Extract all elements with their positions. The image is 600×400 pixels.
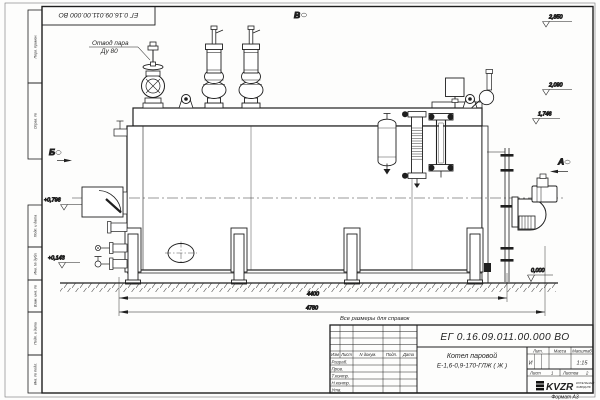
reference-note: Все размеры для справок (340, 316, 410, 322)
elev-0000: 0,000 (531, 268, 545, 274)
stamp-label: Справ. № (33, 113, 37, 129)
callout-line1: Отвод пара (92, 39, 129, 47)
role-utv: Утв. (332, 388, 342, 393)
col-list: Лист (340, 352, 352, 357)
stamp-label: Взам. инв. № (33, 285, 37, 307)
col-doc: N докум. (360, 352, 377, 357)
product-name: Котел паровой (447, 352, 497, 360)
stamp-label: Подп. и дата (33, 215, 37, 238)
elev-2850: 2,850 (548, 15, 563, 21)
col-mass: Масса (554, 349, 567, 354)
dim-4400: 4400 (307, 292, 319, 298)
role-prov: Пров. (332, 367, 344, 372)
elev-0796: +0,796 (44, 198, 61, 204)
elev-0143: +0,143 (48, 256, 65, 262)
stamp-label: Инв. № подл. (33, 363, 37, 385)
col-sign: Подп. (386, 352, 397, 357)
dim-4780: 4780 (306, 306, 318, 312)
col-izm: Изм (331, 352, 339, 357)
col-scale: Масштаб (572, 349, 592, 354)
stamp-label: Перв. примен. (33, 35, 37, 59)
view-label-v: В (294, 10, 300, 20)
drawing-canvas: 4400 4780 2,850 2,090 1,746 +0,796 +0,14… (0, 0, 600, 400)
callout-line2: Ду 80 (100, 48, 118, 55)
view-label-a: А (557, 157, 564, 167)
view-label-b: Б (49, 147, 55, 157)
stamp-label: Подп. и дата (33, 322, 37, 345)
role-tkontr: Т.контр. (332, 374, 350, 379)
scale-value: 1:15 (577, 361, 589, 367)
liter-value: И (529, 361, 533, 367)
product-model: Е-1,6-0,9-170-ГЛЖ ( Ж ) (437, 363, 507, 370)
doc-number: ЕГ 0.16.09.011.00.000 ВО (440, 332, 569, 343)
role-razrab: Разраб. (332, 360, 348, 365)
col-date: Дата (402, 352, 415, 357)
sheet-label: Лист (529, 371, 541, 376)
drawing-sheet: 4400 4780 2,850 2,090 1,746 +0,796 +0,14… (0, 0, 600, 400)
role-nkontr: Н.контр. (332, 381, 351, 386)
format-label: Формат А3 (551, 395, 579, 400)
elev-1746: 1,746 (538, 112, 552, 118)
elev-2090: 2,090 (548, 83, 563, 89)
sheet-value: 1 (551, 371, 553, 376)
company-line2: ЗАВОД.РФ (576, 385, 591, 389)
gas-duct-damper (82, 187, 127, 217)
burner-motor (532, 186, 557, 202)
logo-text: KVZR (546, 382, 574, 393)
col-lit: Лит. (532, 349, 543, 354)
doc-number-rotated: ЕГ 0.16.09.011.00.000 ВО (58, 11, 138, 18)
stamp-label: Инв. № дубл. (33, 252, 37, 274)
sheets-label: Листов (562, 371, 579, 376)
